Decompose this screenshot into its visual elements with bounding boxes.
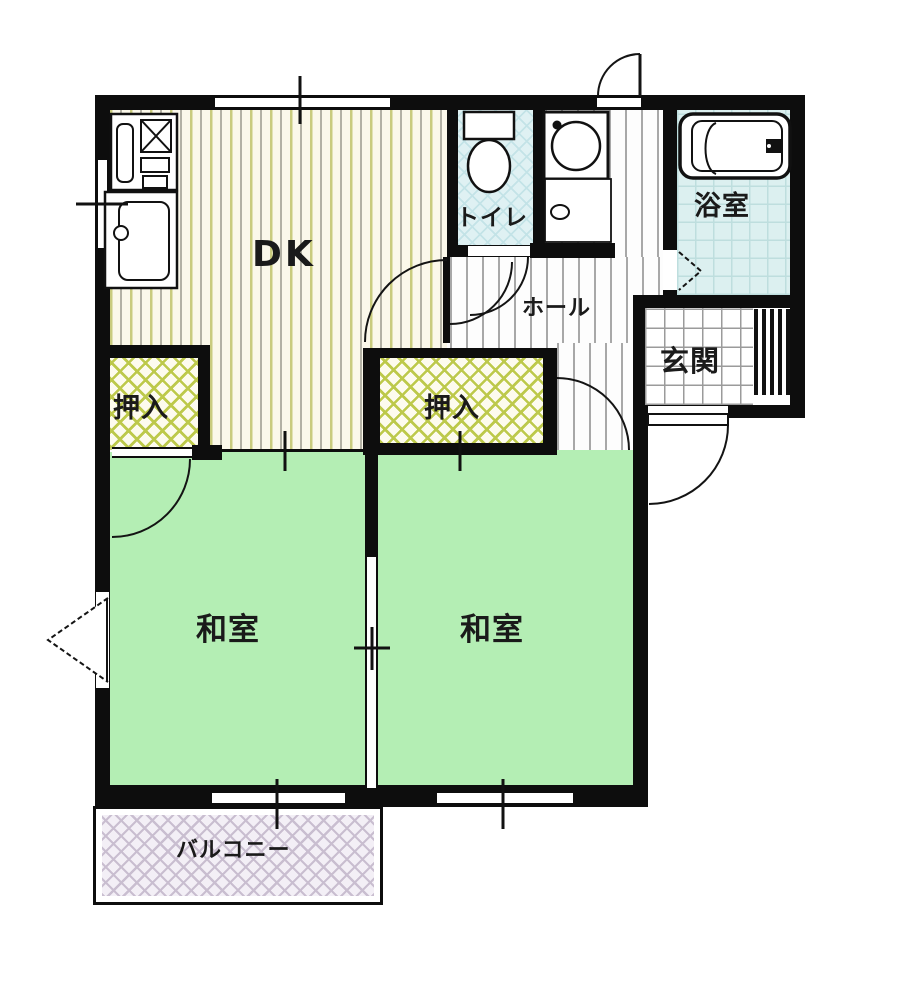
room-label-toilet: トイレ (456, 198, 528, 232)
door-arc (649, 425, 728, 504)
wall-divider-stub-top (365, 455, 378, 557)
window-left-kitchen (96, 160, 109, 248)
wall-closet-right-top (363, 348, 557, 358)
door-arc (598, 54, 640, 96)
wall-toilet-right (533, 110, 545, 257)
wall-closet-left-top (95, 345, 210, 358)
wall-entrance-left (633, 295, 645, 418)
room-divider-sliding-door (365, 557, 378, 788)
room-label-bathroom: 浴室 (694, 184, 750, 223)
dk-room-partition-line (222, 449, 363, 452)
door-gap-bathroom (663, 250, 677, 290)
window-left-room (96, 592, 109, 688)
room-label-washitsu-right: 和室 (460, 604, 524, 649)
room-label-closet-left: 押入 (113, 386, 169, 425)
closet-left-sliding-door (112, 447, 192, 458)
door-gap-toilet (468, 246, 530, 256)
room-label-closet-right: 押入 (424, 386, 480, 425)
wall-toilet-left (447, 110, 458, 257)
room-label-washitsu-left: 和室 (196, 604, 260, 649)
room-label-dk: DK (252, 234, 316, 275)
wall-dk-hall-jamb (443, 257, 450, 343)
wall-closet-right-right (543, 348, 557, 455)
wall-closet-right-left (363, 348, 380, 455)
window-bottom-right-room (437, 791, 573, 805)
door-gap-north (597, 96, 641, 109)
wall-divider-stub-bottom (365, 788, 378, 807)
room-label-entrance: 玄関 (660, 338, 720, 380)
wall-closet-left-right (198, 345, 210, 458)
wall-top (95, 95, 805, 110)
room-label-hall: ホール (522, 290, 591, 322)
wall-closet-left-stub (192, 445, 222, 460)
entrance-step (753, 308, 790, 405)
hall-floor-lower (557, 343, 633, 450)
floor-plan: DK トイレ ホール 浴室 玄関 押入 押入 和室 和室 バルコニー (0, 0, 900, 1000)
wall-washroom-bottom (530, 243, 615, 258)
wall-bath-bottom (633, 295, 805, 308)
window-top-dk (215, 96, 390, 109)
wall-closet-right-bottom (363, 443, 557, 455)
window-bottom-left-room (212, 791, 345, 805)
wall-right-upper (790, 95, 805, 418)
wall-right-lower (633, 418, 648, 807)
washroom-floor (545, 110, 663, 257)
door-gap-entrance (648, 406, 728, 417)
room-label-balcony: バルコニー (176, 832, 291, 864)
